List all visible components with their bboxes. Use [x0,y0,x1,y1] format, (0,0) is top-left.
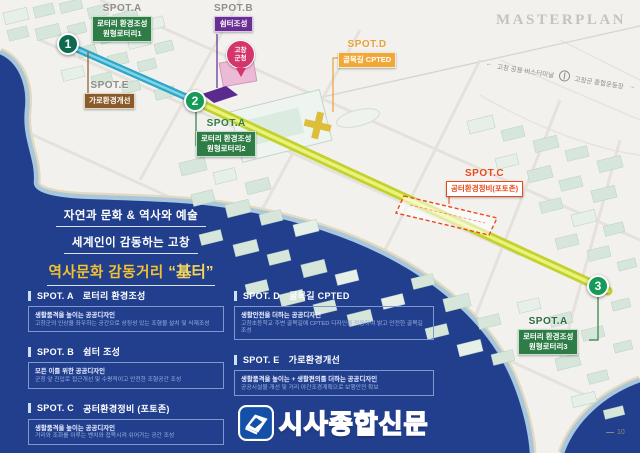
legend-column-2: SPOT. D 골목길 CPTED 생활안전을 더하는 공공디자인 고창초등학교… [234,289,434,409]
legend-item-spot-e: SPOT. E 가로환경개선 생활품격을 높이는 + 생활편의를 더하는 공공디… [234,353,434,396]
legend-bar-icon [234,355,237,365]
spot-e-box: 가로환경개선 [84,93,135,109]
legend-item-spot-d: SPOT. D 골목길 CPTED 생활안전을 더하는 공공디자인 고창초등학교… [234,289,434,340]
newspaper-logo-text: 시사종합신문 [279,404,429,441]
arrow-right-icon: → [628,83,636,91]
legend-code: SPOT. D [243,291,280,301]
legend-bar-icon [28,403,31,413]
legend-column-1: SPOT. A 로터리 환경조성 생활품격을 높이는 공공디자인 고창군의 인상… [28,289,224,453]
spot-e-label: SPOT.E [84,80,135,91]
legend-title: 공터환경정비 (포토존) [83,402,170,415]
legend-bar-icon [28,291,31,301]
masterplan-slide: MASTERPLAN ← 고창 공용 버스터미널 고창군 종합운동장 → 1 2… [0,0,640,453]
spot-a3-box: 로터리 환경조성원형로터리3 [518,329,578,355]
legend-title: 가로환경개선 [289,353,340,366]
legend-title: 쉼터 조성 [83,345,120,358]
slogan-line-1: 자연과 문화 & 역사와 예술 [56,207,206,227]
legend-bar-icon [28,347,31,357]
spot-a2-callout: SPOT.A 로터리 환경조성원형로터리2 [196,118,256,157]
legend-code: SPOT. A [37,291,74,301]
compass-icon [558,70,571,83]
slogan-block: 자연과 문화 & 역사와 예술 세계인이 감동하는 고창 역사문화 감동거리 “… [28,206,234,292]
spot-e-callout: SPOT.E 가로환경개선 [84,80,135,109]
spot-b-callout: SPOT.B 쉼터조성 [214,3,253,32]
legend-code: SPOT. E [243,355,280,365]
spot-c-box: 공터환경정비(포토존) [446,181,523,197]
spot-a1-box: 로터리 환경조성원형로터리1 [92,16,152,42]
arrow-left-icon: ← [485,60,493,68]
newspaper-logo: 시사종합신문 [238,404,429,441]
pin-tip-icon [236,68,246,77]
legend-code: SPOT. B [37,347,74,357]
page-number-rule [606,432,614,433]
spot-c-label: SPOT.C [446,168,523,179]
legend-title: 골목길 CPTED [289,289,350,302]
spot-a2-box: 로터리 환경조성원형로터리2 [196,131,256,157]
newspaper-logo-icon [238,405,274,441]
spot-c-callout: SPOT.C 공터환경정비(포토존) [446,168,523,197]
route-marker-3: 3 [587,275,609,297]
legend-title: 로터리 환경조성 [83,289,146,302]
route-marker-1: 1 [57,33,79,55]
legend-bar-icon [234,291,237,301]
slogan-line-3: 역사문화 감동거리 [49,265,164,281]
slogan-line-2: 세계인이 감동하는 고창 [64,234,198,254]
route-marker-2: 2 [184,90,206,112]
spot-a3-callout: SPOT.A 로터리 환경조성원형로터리3 [518,316,578,355]
gochang-office-pin: 고창군청 [226,40,255,77]
spot-d-box: 골목길 CPTED [338,52,396,68]
spot-d-callout: SPOT.D 골목길 CPTED [338,39,396,68]
slogan-brand-word: “基터” [168,264,213,281]
page-title: MASTERPLAN [496,12,626,29]
spot-a3-label: SPOT.A [518,316,578,327]
spot-a2-label: SPOT.A [196,118,256,129]
map-pin-icon: 고창군청 [226,40,255,69]
spot-b-box: 쉼터조성 [214,16,253,32]
spot-a1-label: SPOT.A [92,3,152,14]
legend-item-spot-b: SPOT. B 쉼터 조성 모든 이를 위한 공공디자인 군청 앞 진입로 접근… [28,345,224,388]
page-number: 10 [606,429,625,436]
spot-a1-callout: SPOT.A 로터리 환경조성원형로터리1 [92,3,152,42]
spot-d-label: SPOT.D [338,39,396,50]
legend-item-spot-a: SPOT. A 로터리 환경조성 생활품격을 높이는 공공디자인 고창군의 인상… [28,289,224,332]
legend-item-spot-c: SPOT. C 공터환경정비 (포토존) 생활품격을 높이는 공공디자인 거리와… [28,402,224,445]
spot-b-label: SPOT.B [214,3,253,14]
legend-code: SPOT. C [37,403,74,413]
